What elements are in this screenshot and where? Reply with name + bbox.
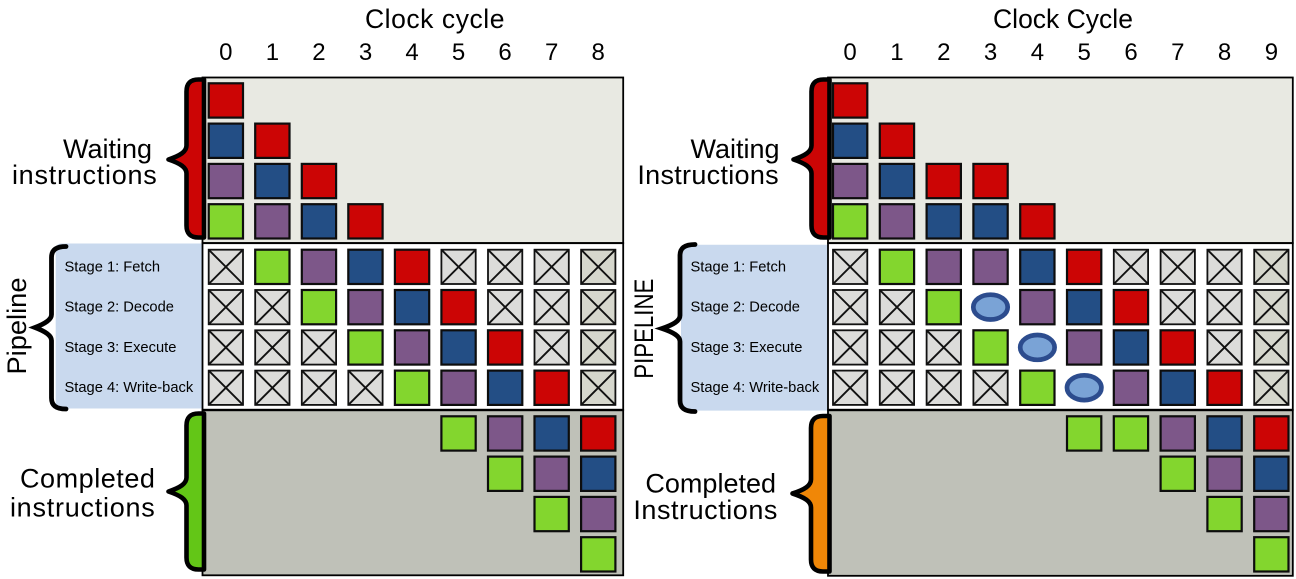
svg-text:Instructions: Instructions — [637, 160, 779, 190]
svg-text:Stage 1: Fetch: Stage 1: Fetch — [65, 260, 161, 276]
svg-text:instructions: instructions — [10, 493, 156, 523]
svg-text:Stage 3: Execute: Stage 3: Execute — [65, 340, 177, 356]
svg-text:Stage 4: Write-back: Stage 4: Write-back — [691, 380, 820, 396]
svg-text:5: 5 — [1078, 39, 1091, 66]
svg-text:1: 1 — [266, 39, 279, 66]
svg-text:instructions: instructions — [12, 160, 158, 190]
svg-text:7: 7 — [1171, 39, 1184, 66]
svg-text:Instructions: Instructions — [633, 495, 778, 525]
svg-text:Clock cycle: Clock cycle — [365, 4, 505, 34]
svg-text:6: 6 — [498, 39, 511, 66]
svg-text:Completed: Completed — [645, 469, 776, 499]
svg-text:3: 3 — [984, 39, 997, 66]
svg-text:9: 9 — [1265, 39, 1278, 66]
svg-text:Pipeline: Pipeline — [2, 278, 32, 375]
svg-text:Completed: Completed — [20, 464, 156, 494]
svg-text:0: 0 — [843, 39, 856, 66]
svg-text:4: 4 — [405, 39, 418, 66]
svg-text:Clock Cycle: Clock Cycle — [993, 4, 1133, 34]
svg-text:4: 4 — [1031, 39, 1044, 66]
svg-text:0: 0 — [219, 39, 232, 66]
svg-text:3: 3 — [359, 39, 372, 66]
svg-text:Stage 1: Fetch: Stage 1: Fetch — [691, 260, 787, 276]
svg-text:8: 8 — [1218, 39, 1231, 66]
svg-text:7: 7 — [545, 39, 558, 66]
svg-text:Stage 4: Write-back: Stage 4: Write-back — [65, 380, 194, 396]
svg-text:6: 6 — [1124, 39, 1137, 66]
svg-text:8: 8 — [592, 39, 605, 66]
svg-text:5: 5 — [452, 39, 465, 66]
svg-text:Stage 2: Decode: Stage 2: Decode — [65, 300, 174, 316]
svg-text:PIPELINE: PIPELINE — [629, 279, 659, 379]
svg-text:Stage 2: Decode: Stage 2: Decode — [691, 300, 800, 316]
svg-text:2: 2 — [312, 39, 325, 66]
svg-text:Stage 3: Execute: Stage 3: Execute — [691, 340, 803, 356]
svg-text:1: 1 — [890, 39, 903, 66]
svg-text:2: 2 — [937, 39, 950, 66]
